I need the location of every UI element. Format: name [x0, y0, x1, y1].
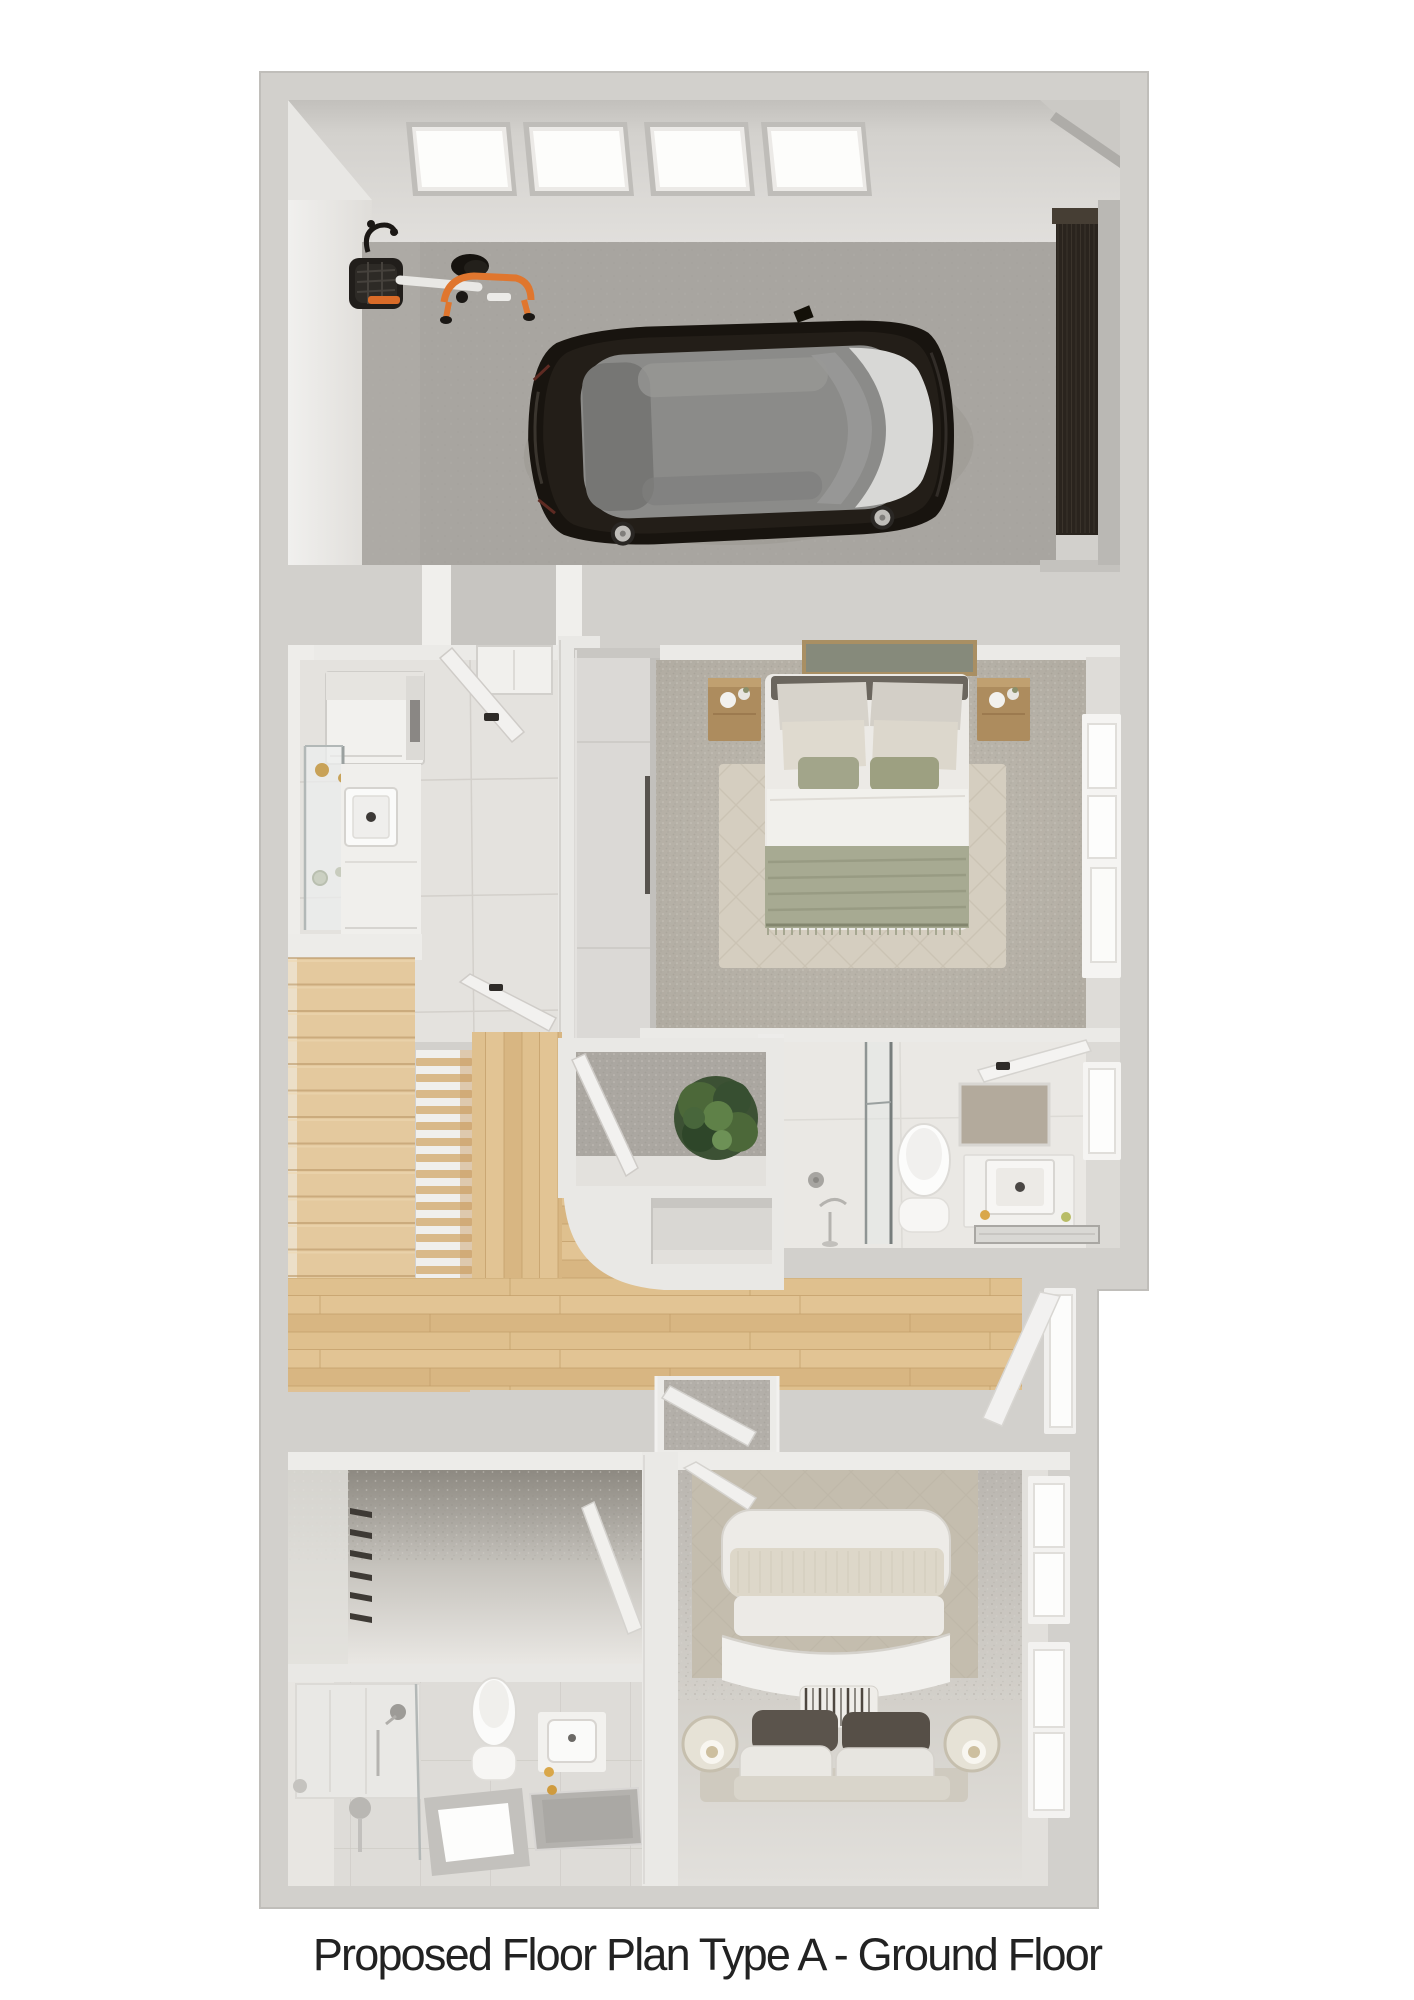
svg-text:Proposed Floor Plan Type A - G: Proposed Floor Plan Type A - Ground Floo…	[313, 1929, 1103, 1980]
